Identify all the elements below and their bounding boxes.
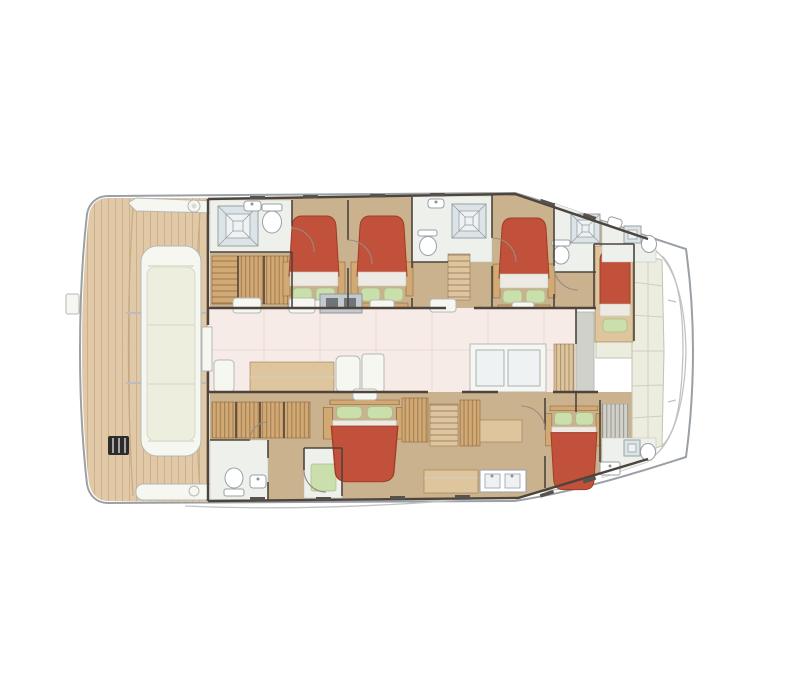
starboard-hull — [210, 389, 644, 500]
shower-icon — [452, 204, 486, 238]
toilet-icon — [418, 230, 437, 256]
faucet — [435, 201, 438, 204]
bow-grey-trunk — [576, 312, 594, 392]
sink-icon — [250, 475, 266, 488]
salon-wood-cabinet — [554, 344, 574, 392]
shower-icon — [218, 206, 258, 246]
bench-seat — [424, 470, 478, 493]
bow-frame-inner — [662, 256, 683, 446]
catamaran-floor-plan — [0, 0, 800, 700]
bow-tick-marks — [668, 300, 676, 402]
salon-seat — [233, 298, 261, 313]
galley-unit — [320, 294, 362, 313]
faucet — [257, 478, 260, 481]
shower-icon — [624, 440, 640, 456]
lockers-owner-suite — [212, 402, 310, 438]
salon-door-panels — [470, 344, 546, 392]
faucet — [609, 465, 612, 468]
winch-center — [192, 204, 197, 209]
toilet-icon — [224, 468, 244, 496]
salon-entry-door — [202, 327, 212, 371]
salon-seat — [289, 298, 315, 313]
toilet-icon — [641, 444, 656, 461]
toilet-icon — [262, 204, 282, 233]
port-hull — [210, 194, 644, 313]
salon-cabinet — [362, 354, 384, 392]
lounge-cushions — [147, 267, 195, 441]
step-stool — [353, 389, 377, 400]
shelves-owner — [402, 398, 428, 442]
winch-aft — [189, 486, 199, 496]
boarding-gate — [66, 294, 79, 314]
salon-seat — [214, 360, 234, 392]
salon-seat — [430, 299, 456, 312]
bathroom-bow-port — [602, 216, 657, 262]
stern-davit-arm — [128, 198, 224, 213]
floor-plan-image — [0, 0, 800, 700]
salon-seat — [336, 356, 360, 392]
bed-sheet — [600, 304, 630, 316]
stairs-port — [448, 254, 470, 300]
stairs-starboard — [430, 404, 458, 446]
shelf-unit — [460, 400, 480, 446]
sink-icon — [244, 201, 261, 211]
lockers-aft-port — [212, 256, 292, 304]
overhead-cabinet — [480, 420, 522, 442]
vanity-double-sink — [480, 470, 526, 492]
faucet — [251, 203, 254, 206]
bed-pillow — [603, 319, 627, 332]
